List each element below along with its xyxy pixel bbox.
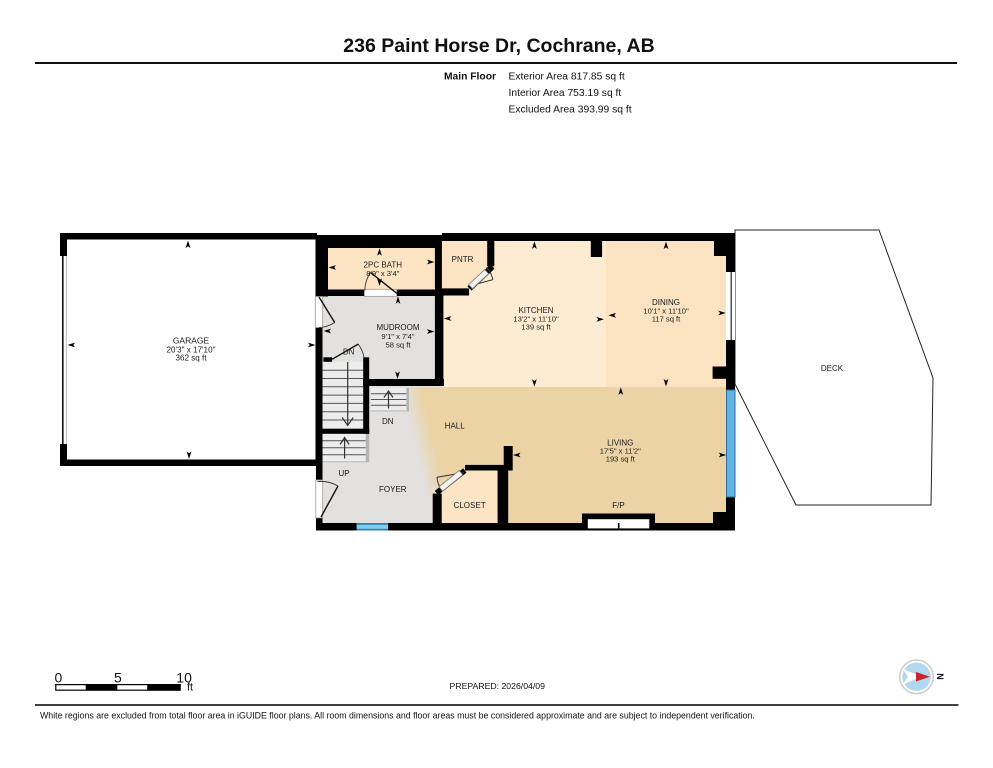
svg-text:FOYER: FOYER (379, 485, 407, 494)
svg-text:236 Paint Horse Dr, Cochrane,: 236 Paint Horse Dr, Cochrane, AB (343, 35, 654, 57)
svg-text:GARAGE: GARAGE (173, 336, 210, 346)
svg-text:CLOSET: CLOSET (454, 501, 486, 510)
svg-text:HALL: HALL (445, 422, 466, 431)
svg-text:Main Floor: Main Floor (444, 72, 496, 83)
svg-text:Exterior Area 817.85 sq ft: Exterior Area 817.85 sq ft (509, 72, 625, 83)
svg-text:PNTR: PNTR (452, 255, 474, 264)
svg-text:58 sq ft: 58 sq ft (386, 341, 412, 350)
svg-text:DN: DN (343, 348, 355, 357)
svg-text:DN: DN (382, 417, 394, 426)
svg-text:N: N (935, 673, 945, 680)
svg-text:5: 5 (114, 670, 122, 686)
svg-text:0: 0 (55, 670, 63, 686)
svg-text:Interior Area 753.19 sq ft: Interior Area 753.19 sq ft (509, 88, 622, 99)
svg-text:139 sq ft: 139 sq ft (521, 323, 551, 332)
svg-text:193 sq ft: 193 sq ft (606, 455, 636, 464)
svg-text:UP: UP (338, 469, 349, 478)
svg-text:117 sq ft: 117 sq ft (652, 314, 681, 323)
svg-text:White regions are excluded fro: White regions are excluded from total fl… (40, 711, 755, 721)
svg-text:ft: ft (187, 682, 193, 694)
svg-text:Excluded Area 393.99 sq ft: Excluded Area 393.99 sq ft (509, 104, 632, 115)
svg-text:362 sq ft: 362 sq ft (175, 354, 207, 363)
svg-text:8'9" x 3'4": 8'9" x 3'4" (366, 269, 400, 278)
svg-text:PREPARED: 2026/04/09: PREPARED: 2026/04/09 (450, 681, 546, 691)
svg-text:F/P: F/P (612, 501, 624, 510)
svg-text:DECK: DECK (821, 364, 844, 373)
svg-text:MUDROOM: MUDROOM (376, 323, 419, 332)
